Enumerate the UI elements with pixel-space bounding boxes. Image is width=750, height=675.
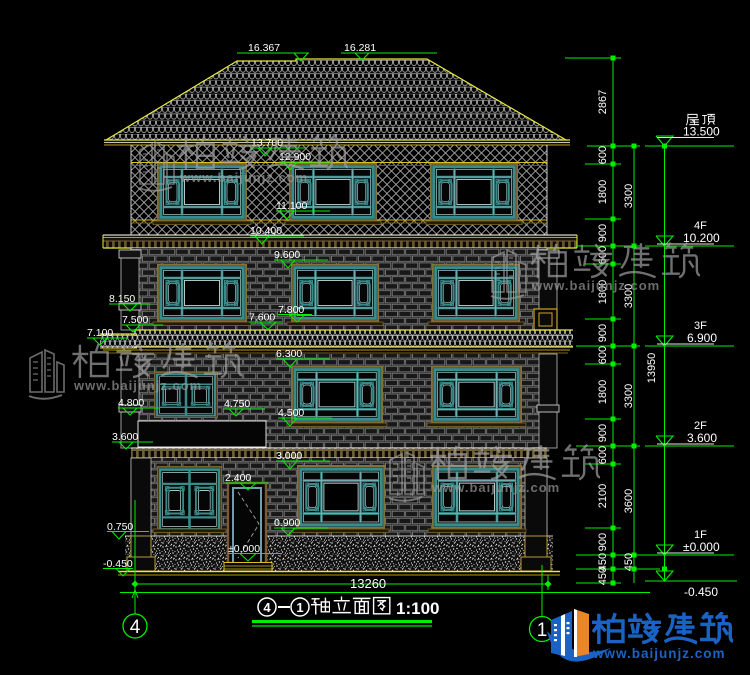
svg-text:3.600: 3.600 — [687, 431, 717, 445]
svg-text:1800: 1800 — [597, 380, 609, 404]
svg-text:9.600: 9.600 — [274, 249, 300, 261]
svg-text:4.500: 4.500 — [278, 407, 304, 419]
svg-text:600: 600 — [597, 446, 609, 464]
svg-text:900: 900 — [597, 224, 609, 242]
svg-text:10.200: 10.200 — [683, 231, 720, 245]
svg-text:4: 4 — [263, 600, 271, 615]
svg-text:600: 600 — [597, 146, 609, 164]
svg-text:3.600: 3.600 — [112, 431, 138, 443]
svg-text:13.500: 13.500 — [683, 125, 720, 139]
svg-text:1: 1 — [537, 620, 548, 641]
svg-text:16.281: 16.281 — [344, 42, 376, 54]
svg-text:600: 600 — [597, 346, 609, 364]
svg-text:450: 450 — [623, 553, 635, 571]
svg-text:10.400: 10.400 — [250, 225, 282, 237]
svg-text:2867: 2867 — [597, 90, 609, 114]
svg-text:3300: 3300 — [623, 384, 635, 408]
svg-text:www.baijunjz.com: www.baijunjz.com — [531, 278, 660, 293]
svg-text:www.baijunjz.com: www.baijunjz.com — [73, 378, 202, 393]
svg-text:1800: 1800 — [597, 180, 609, 204]
svg-text:6.300: 6.300 — [276, 348, 302, 360]
svg-text:www.baijunjz.com: www.baijunjz.com — [179, 170, 308, 185]
svg-text:7.100: 7.100 — [87, 327, 113, 339]
svg-text:900: 900 — [597, 424, 609, 442]
svg-text:2.400: 2.400 — [225, 472, 251, 484]
svg-text:2100: 2100 — [597, 484, 609, 508]
svg-text:8.150: 8.150 — [109, 293, 135, 305]
svg-text:4.750: 4.750 — [224, 398, 250, 410]
svg-text:1:100: 1:100 — [396, 599, 439, 618]
svg-text:±0.000: ±0.000 — [683, 540, 720, 554]
svg-text:-0.450: -0.450 — [684, 585, 718, 599]
svg-text:900: 900 — [597, 324, 609, 342]
svg-text:450: 450 — [597, 567, 609, 585]
svg-text:1: 1 — [296, 600, 303, 615]
svg-text:0.900: 0.900 — [274, 517, 300, 529]
svg-text:3300: 3300 — [623, 184, 635, 208]
svg-text:11.100: 11.100 — [276, 200, 307, 212]
svg-text:900: 900 — [597, 533, 609, 551]
svg-text:7.500: 7.500 — [122, 314, 148, 326]
svg-text:www.baijunjz.com: www.baijunjz.com — [592, 646, 726, 661]
svg-text:13260: 13260 — [350, 576, 386, 591]
svg-text:4: 4 — [130, 617, 141, 638]
svg-text:13950: 13950 — [646, 353, 658, 384]
svg-text:3600: 3600 — [623, 489, 635, 513]
svg-text:www.baijunjz.com: www.baijunjz.com — [431, 480, 560, 495]
svg-text:3.000: 3.000 — [276, 450, 302, 462]
svg-text:6.900: 6.900 — [687, 331, 717, 345]
svg-text:4.800: 4.800 — [118, 397, 144, 409]
svg-text:16.367: 16.367 — [248, 42, 280, 54]
